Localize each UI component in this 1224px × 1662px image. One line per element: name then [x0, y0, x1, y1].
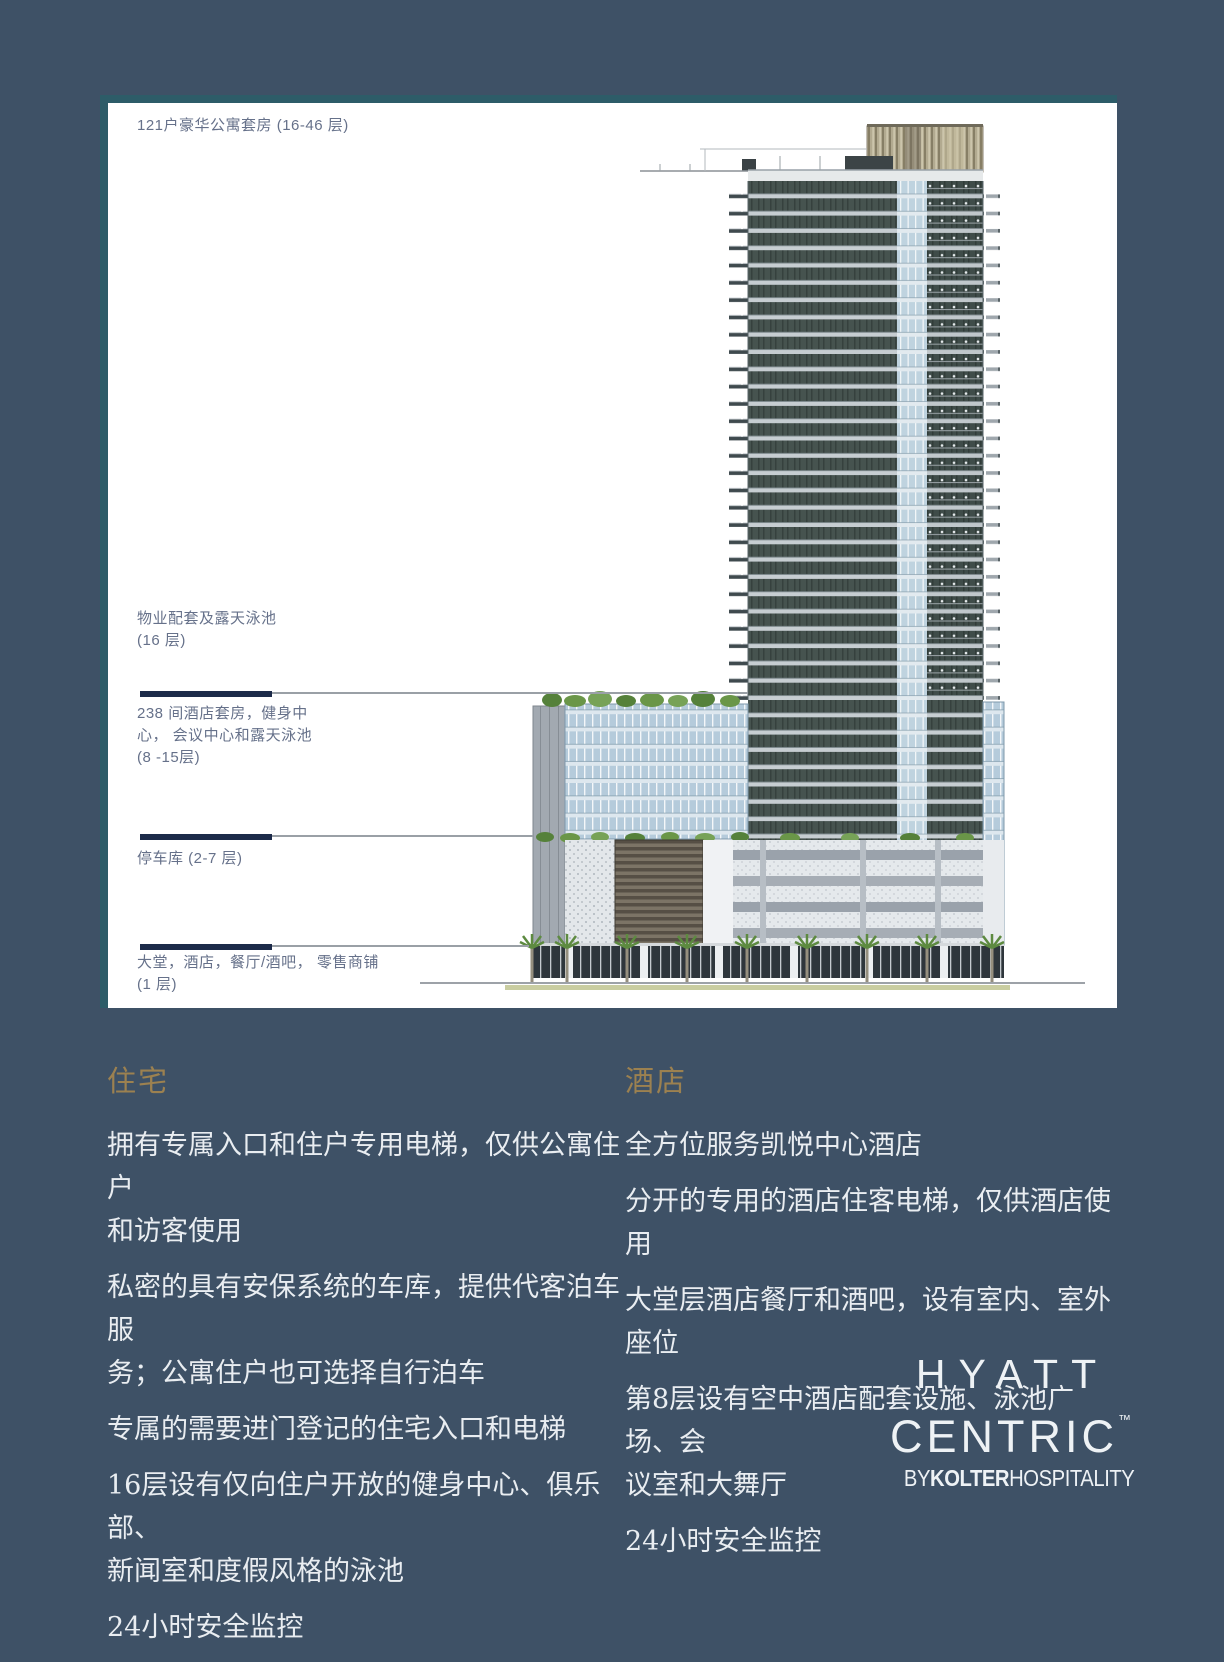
paragraph: 分开的专用的酒店住客电梯，仅供酒店使用 [625, 1180, 1125, 1266]
hyatt-centric-logo: HYATT CENTRIC™ BYKOLTERHOSPITALITY [890, 1352, 1122, 1491]
paragraph: 拥有专属入口和住户专用电梯，仅供公寓住户 和访客使用 [107, 1124, 623, 1253]
trademark-symbol: ™ [1118, 1412, 1131, 1427]
leader-line-lobby [140, 944, 529, 950]
paragraph: 16层设有仅向住户开放的健身中心、俱乐部、 新闻室和度假风格的泳池 [107, 1464, 623, 1593]
paragraph: 私密的具有安保系统的车库，提供代客泊车服 务；公寓住户也可选择自行泊车 [107, 1266, 623, 1395]
leader-line-amenities [140, 691, 748, 697]
paragraph: 全方位服务凯悦中心酒店 [625, 1124, 1125, 1167]
paragraph: 24小时安全监控 [625, 1520, 1125, 1563]
brochure-page: 121户豪华公寓套房 (16-46 层) 物业配套及露天泳池 (16 层) 23… [0, 0, 1224, 1584]
diagram-label-parking-floors: 停车库 (2-7 层) [137, 848, 243, 870]
paragraph: 专属的需要进门登记的住宅入口和电梯 [107, 1408, 623, 1451]
diagram-label-lobby-level: 大堂，酒店，餐厅/酒吧， 零售商铺 (1 层) [137, 952, 379, 996]
logo-centric-text: CENTRIC™ [890, 1396, 1122, 1461]
leader-line-parking [140, 834, 533, 840]
building-elevation-illustration [108, 103, 1117, 1008]
diagram-label-condo-floors: 121户豪华公寓套房 (16-46 层) [137, 115, 349, 137]
hotel-paragraphs: 全方位服务凯悦中心酒店分开的专用的酒店住客电梯，仅供酒店使用大堂层酒店餐厅和酒吧… [625, 1124, 1125, 1563]
parking-garage [565, 840, 1004, 945]
ground-line [420, 983, 1085, 990]
residences-title: 住宅 [107, 1058, 623, 1100]
diagram-label-amenities-level: 物业配套及露天泳池 (16 层) [137, 608, 277, 652]
rooftop-structures [640, 124, 983, 172]
logo-hyatt-text: HYATT [890, 1352, 1122, 1396]
hotel-section: 酒店 全方位服务凯悦中心酒店分开的专用的酒店住客电梯，仅供酒店使用大堂层酒店餐厅… [625, 1058, 1125, 1576]
residences-paragraphs: 拥有专属入口和住户专用电梯，仅供公寓住户 和访客使用私密的具有安保系统的车库，提… [107, 1124, 623, 1649]
diagram-label-hotel-floors: 238 间酒店套房，健身中 心， 会议中心和露天泳池 (8 -15层) [137, 703, 312, 769]
logo-by-kolter-hospitality: BYKOLTERHOSPITALITY [904, 1465, 1108, 1491]
ground-floor-retail [533, 943, 1004, 978]
paragraph: 24小时安全监控 [107, 1606, 623, 1649]
building-diagram-panel [100, 95, 1117, 1008]
residences-section: 住宅 拥有专属入口和住户专用电梯，仅供公寓住户 和访客使用私密的具有安保系统的车… [107, 1058, 623, 1662]
residential-tower [729, 170, 1000, 840]
hotel-title: 酒店 [625, 1058, 1125, 1100]
